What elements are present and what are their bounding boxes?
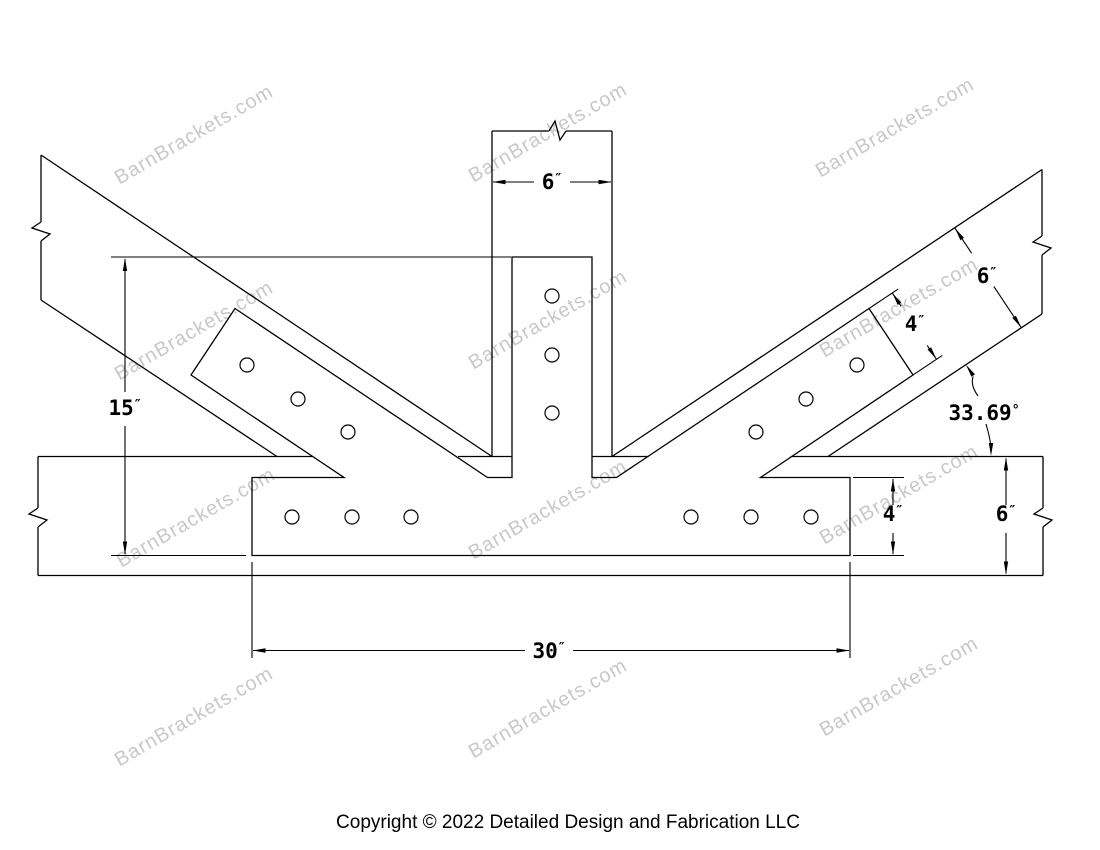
timber-strut-left: [32, 155, 492, 457]
bolt-hole: [545, 348, 559, 362]
dimension-bracket-height: 15″: [108, 257, 511, 556]
bolt-hole: [684, 510, 698, 524]
dimension-beam-depth: 6″: [996, 458, 1016, 575]
dimension-strut-angle: 33.69°: [948, 365, 1019, 456]
watermark-text: BarnBrackets.com: [111, 662, 277, 771]
dimension-base-length: 30″: [252, 562, 850, 663]
bolt-hole: [545, 289, 559, 303]
dim-strut-angle-label: 33.69°: [948, 401, 1019, 425]
watermark-text: BarnBrackets.com: [816, 632, 982, 741]
bolt-hole: [345, 510, 359, 524]
bolt-hole: [341, 425, 355, 439]
dim-base-length-label: 30″: [532, 639, 565, 663]
watermark-text: BarnBrackets.com: [465, 455, 631, 564]
bolt-hole: [545, 406, 559, 420]
bolt-hole: [291, 392, 305, 406]
dim-strut-strap-width-label: 4″: [905, 312, 925, 336]
dim-bracket-height-label: 15″: [108, 396, 141, 420]
watermark-text: BarnBrackets.com: [111, 80, 277, 189]
bolt-hole: [799, 392, 813, 406]
watermark-text: BarnBrackets.com: [465, 654, 631, 763]
bracket-drawing: BarnBrackets.com BarnBrackets.com BarnBr…: [0, 0, 1100, 850]
bolt-hole: [804, 510, 818, 524]
bolt-hole: [404, 510, 418, 524]
drawing-canvas: BarnBrackets.com BarnBrackets.com BarnBr…: [0, 0, 1100, 850]
watermark-text: BarnBrackets.com: [816, 253, 982, 362]
dimension-post-width: 6″: [493, 170, 612, 194]
dim-beam-depth-label: 6″: [996, 502, 1016, 526]
copyright-text: Copyright © 2022 Detailed Design and Fab…: [336, 812, 800, 833]
bolt-hole: [285, 510, 299, 524]
dim-strut-depth-label: 6″: [977, 264, 997, 288]
bolt-hole: [850, 358, 864, 372]
bolt-hole: [744, 510, 758, 524]
bolt-hole: [240, 358, 254, 372]
bolt-hole: [749, 425, 763, 439]
dim-base-strap-height-label: 4″: [883, 502, 903, 526]
dim-post-width-label: 6″: [542, 170, 562, 194]
watermark-text: BarnBrackets.com: [812, 73, 978, 182]
